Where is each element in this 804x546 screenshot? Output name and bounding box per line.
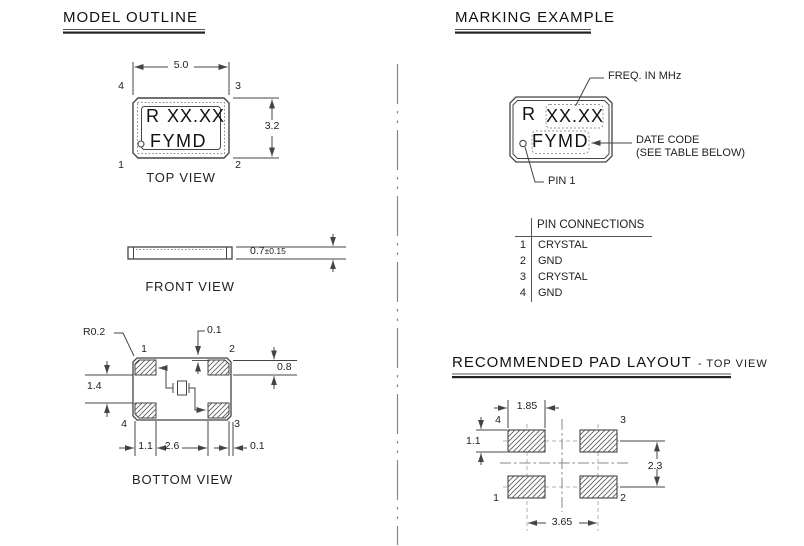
pin-connections-title: PIN CONNECTIONS [537, 219, 644, 231]
dim-thickness-value: 0.7 [250, 246, 265, 257]
datasheet-drawing-page: MODEL OUTLINE 5.0 4 3 1 2 R XX.XX FYMD 3… [0, 0, 804, 546]
front-view-label: FRONT VIEW [145, 280, 235, 294]
top-view-pin3-label: 3 [232, 81, 244, 92]
pin-table-row-signal: GND [538, 288, 562, 300]
bottom-view-pin2-label: 2 [226, 344, 238, 355]
dim-pad-width: 1.1 [136, 441, 155, 452]
pin-table-row-pin: 2 [512, 256, 526, 268]
dim-package-width: 5.0 [167, 60, 195, 71]
top-view-label: TOP VIEW [136, 171, 226, 185]
layout-pad-pin3 [580, 430, 617, 452]
dim-pad-vertical-gap: 1.4 [87, 381, 102, 392]
bottom-view-drawing [85, 331, 297, 456]
layout-pin2-label: 2 [617, 493, 629, 504]
dim-pad-side-offset: 0.1 [250, 441, 265, 452]
marking-datecode: FYMD [532, 132, 589, 151]
top-view-marking-prefix: R [146, 107, 160, 126]
layout-pin4-label: 4 [492, 415, 504, 426]
datecode-callout: DATE CODE [636, 135, 699, 147]
pin-table-row-pin: 4 [512, 288, 526, 300]
top-view-marking-freq: XX.XX [167, 107, 225, 126]
dim-corner-radius: R0.2 [83, 327, 105, 338]
dim-pad-height: 0.8 [277, 362, 292, 373]
top-view-marking-datecode: FYMD [150, 132, 207, 151]
dim-thickness: 0.7±0.15 [250, 246, 286, 257]
pin-table-row-signal: CRYSTAL [538, 272, 588, 284]
dim-pad-center-gap: 2.6 [161, 441, 183, 452]
pad-pin3 [208, 403, 229, 418]
dim-layout-pad-width: 1.85 [509, 401, 545, 412]
dim-package-height: 3.2 [260, 121, 284, 132]
marking-freq: XX.XX [546, 107, 603, 126]
dim-layout-pad-height: 1.1 [466, 436, 481, 447]
pad-layout-heading: RECOMMENDED PAD LAYOUT - TOP VIEW [452, 355, 768, 371]
freq-callout: FREQ. IN MHz [608, 71, 681, 83]
pad-layout-heading-main: RECOMMENDED PAD LAYOUT [452, 355, 692, 371]
dim-layout-column-pitch: 3.65 [545, 517, 579, 528]
top-view-pin4-label: 4 [115, 81, 127, 92]
top-view-pin2-label: 2 [232, 160, 244, 171]
dim-pad-top-offset: 0.1 [207, 325, 222, 336]
layout-pad-pin4 [508, 430, 545, 452]
front-view-drawing [128, 234, 346, 272]
pin-table-row-signal: CRYSTAL [538, 240, 588, 252]
layout-pad-pin1 [508, 476, 545, 498]
pin-table-row-signal: GND [538, 256, 562, 268]
datecode-callout-note: (SEE TABLE BELOW) [636, 148, 745, 160]
pad-layout-drawing [476, 400, 665, 531]
pin-table-row-pin: 3 [512, 272, 526, 284]
pin-table-row-pin: 1 [512, 240, 526, 252]
marking-example-heading: MARKING EXAMPLE [455, 10, 615, 26]
bottom-view-pin1-label: 1 [138, 344, 150, 355]
top-view-pin1-label: 1 [115, 160, 127, 171]
pad-layout-heading-suffix: - TOP VIEW [698, 359, 768, 371]
marking-example-drawing [510, 78, 632, 182]
layout-pin1-label: 1 [490, 493, 502, 504]
bottom-view-label: BOTTOM VIEW [132, 473, 232, 487]
layout-pad-pin2 [580, 476, 617, 498]
dim-thickness-tolerance: ±0.15 [265, 247, 286, 256]
dim-layout-row-pitch: 2.3 [643, 461, 667, 472]
pad-pin4 [135, 403, 156, 418]
layout-pin3-label: 3 [617, 415, 629, 426]
model-outline-heading: MODEL OUTLINE [63, 10, 198, 26]
pin1-callout: PIN 1 [548, 176, 576, 188]
marking-prefix: R [522, 105, 536, 124]
bottom-view-pin3-label: 3 [231, 419, 243, 430]
bottom-view-pin4-label: 4 [118, 419, 130, 430]
pad-pin1 [135, 360, 156, 375]
pad-pin2 [208, 360, 229, 375]
